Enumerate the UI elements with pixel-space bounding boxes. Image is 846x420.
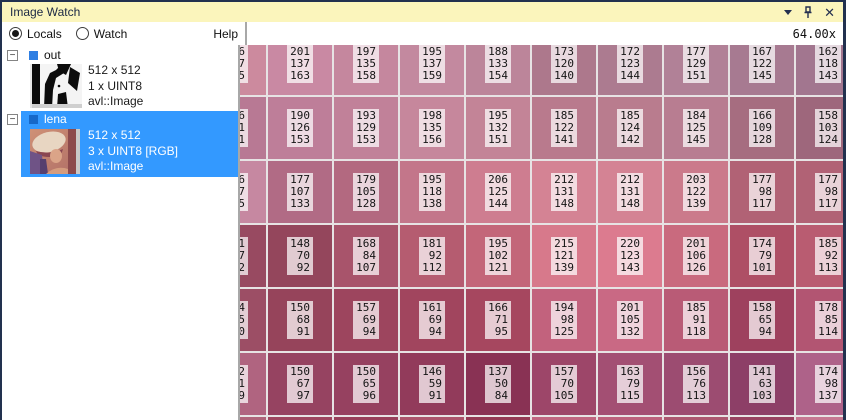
watch-radio-label[interactable]: Watch bbox=[94, 27, 128, 41]
pixel-value-chip: 212131148 bbox=[551, 173, 577, 211]
pixel-value-chip: 179105128 bbox=[353, 173, 379, 211]
pixel-value-chip: 212131148 bbox=[617, 173, 643, 211]
pixel-cell: 198135156 bbox=[400, 97, 466, 161]
item-name[interactable]: lena bbox=[44, 112, 67, 126]
pixel-row: 6111901261531931291531981351561951321511… bbox=[240, 97, 843, 161]
pixel-cell-partial: 172 bbox=[240, 225, 268, 289]
pixel-value-chip: 15676113 bbox=[683, 365, 709, 403]
locals-radio[interactable] bbox=[9, 27, 22, 40]
pixel-value-chip: 17479101 bbox=[749, 237, 775, 275]
pixel-value-chip: 173120140 bbox=[551, 45, 577, 83]
pixel-cell: 220123143 bbox=[598, 225, 664, 289]
pixel-cell: 17479101 bbox=[730, 225, 796, 289]
pixel-value-chip: 197135158 bbox=[353, 45, 379, 83]
pixel-cell: 1506891 bbox=[268, 289, 334, 353]
image-variable-icon bbox=[29, 51, 38, 60]
pixel-cell: 18591118 bbox=[664, 289, 730, 353]
pixel-value-chip: 215121139 bbox=[551, 237, 577, 275]
pixel-cell: 195132151 bbox=[466, 97, 532, 161]
main-area: − out 512 x 512 1 x UINT8 a bbox=[2, 45, 843, 420]
pixel-value-chip: 18592113 bbox=[815, 237, 841, 275]
pixel-cell: 162118143 bbox=[796, 45, 843, 97]
item-name[interactable]: out bbox=[44, 48, 61, 62]
pixel-value-chip: 188133154 bbox=[485, 45, 511, 83]
pixel-value-chip: 16884107 bbox=[353, 237, 379, 275]
pixel-value-chip: 611 bbox=[240, 109, 248, 147]
pixel-cell: 166109128 bbox=[730, 97, 796, 161]
pixel-cell: 193129153 bbox=[334, 97, 400, 161]
pixel-cell: 15676113 bbox=[664, 353, 730, 417]
pixel-cell: 1487092 bbox=[268, 225, 334, 289]
pixel-cell: 17885114 bbox=[796, 289, 843, 353]
item-type: avl::Image bbox=[88, 159, 178, 175]
pixel-value-chip: 195137159 bbox=[419, 45, 445, 83]
pixel-value-chip: 450 bbox=[240, 301, 248, 339]
pixel-value-chip: 1506891 bbox=[287, 301, 313, 339]
pixel-cell-partial: 450 bbox=[240, 289, 268, 353]
pixel-cell: 1616994 bbox=[400, 289, 466, 353]
pixel-value-chip: 1487092 bbox=[287, 237, 313, 275]
pixel-grid-viewport[interactable]: 6752011371631971351581951371591881331541… bbox=[240, 45, 843, 420]
image-watch-panel: Image Watch ✕ Locals Watch Help 64.00x − bbox=[2, 2, 843, 420]
pixel-value-chip: 220123143 bbox=[617, 237, 643, 275]
pixel-value-chip: 17798117 bbox=[815, 173, 841, 211]
pixel-value-chip: 172123144 bbox=[617, 45, 643, 83]
toolbar-right: 64.00x bbox=[247, 22, 843, 45]
pixel-value-chip: 203122139 bbox=[683, 173, 709, 211]
pixel-value-chip: 1506797 bbox=[287, 365, 313, 403]
pixel-cell: 190126153 bbox=[268, 97, 334, 161]
pixel-cell: 201105132 bbox=[598, 289, 664, 353]
item-format: 1 x UINT8 bbox=[88, 79, 143, 95]
pixel-value-chip: 195132151 bbox=[485, 109, 511, 147]
pixel-value-chip: 185122141 bbox=[551, 109, 577, 147]
pixel-value-chip: 18591118 bbox=[683, 301, 709, 339]
pixel-cell: 18592113 bbox=[796, 225, 843, 289]
pixel-cell-partial: 611 bbox=[240, 97, 268, 161]
toolbar-left: Locals Watch Help bbox=[2, 22, 247, 45]
pixel-cell: 212131148 bbox=[598, 161, 664, 225]
pixel-cell: 18192112 bbox=[400, 225, 466, 289]
locals-radio-label[interactable]: Locals bbox=[27, 27, 62, 41]
pixel-value-chip: 201137163 bbox=[287, 45, 313, 83]
pixel-cell: 212131148 bbox=[532, 161, 598, 225]
pixel-value-chip: 17798117 bbox=[749, 173, 775, 211]
pixel-value-chip: 1667195 bbox=[485, 301, 511, 339]
pixel-value-chip: 166109128 bbox=[749, 109, 775, 147]
item-size: 512 x 512 bbox=[88, 128, 178, 144]
pixel-value-chip: 1616994 bbox=[419, 301, 445, 339]
toolbar: Locals Watch Help 64.00x bbox=[2, 22, 843, 46]
pixel-cell: 14163103 bbox=[730, 353, 796, 417]
window-menu-icon[interactable] bbox=[784, 10, 792, 15]
pixel-value-chip: 19498125 bbox=[551, 301, 577, 339]
pixel-value-chip: 201106126 bbox=[683, 237, 709, 275]
window-title: Image Watch bbox=[10, 5, 80, 19]
pixel-cell-partial: 219 bbox=[240, 353, 268, 417]
pixel-value-chip: 16379115 bbox=[617, 365, 643, 403]
pixel-value-chip: 17498137 bbox=[815, 365, 841, 403]
pixel-row: 2191506797150659614659911375084157701051… bbox=[240, 353, 843, 417]
pixel-value-chip: 1465991 bbox=[419, 365, 445, 403]
pixel-cell: 1506797 bbox=[268, 353, 334, 417]
pixel-cell: 201106126 bbox=[664, 225, 730, 289]
pixel-value-chip: 675 bbox=[240, 45, 248, 83]
pixel-cell: 1576994 bbox=[334, 289, 400, 353]
pixel-value-chip: 195118138 bbox=[419, 173, 445, 211]
pixel-row: 1721487092168841071819211219510212121512… bbox=[240, 225, 843, 289]
pixel-cell: 201137163 bbox=[268, 45, 334, 97]
pixel-value-chip: 675 bbox=[240, 173, 248, 211]
item-format: 3 x UINT8 [RGB] bbox=[88, 144, 178, 160]
pixel-cell: 184125145 bbox=[664, 97, 730, 161]
locals-list: − out 512 x 512 1 x UINT8 a bbox=[2, 45, 240, 420]
pixel-value-chip: 1576994 bbox=[353, 301, 379, 339]
collapse-toggle-icon[interactable]: − bbox=[7, 50, 18, 61]
pixel-cell: 173120140 bbox=[532, 45, 598, 97]
image-variable-icon bbox=[29, 115, 38, 124]
pin-icon[interactable] bbox=[803, 6, 813, 19]
pixel-cell: 215121139 bbox=[532, 225, 598, 289]
pixel-value-chip: 172 bbox=[240, 237, 248, 275]
pixel-value-chip: 193129153 bbox=[353, 109, 379, 147]
out-thumbnail[interactable] bbox=[30, 64, 82, 108]
pixel-cell: 172123144 bbox=[598, 45, 664, 97]
pixel-cell: 197135158 bbox=[334, 45, 400, 97]
pixel-cell: 1375084 bbox=[466, 353, 532, 417]
pixel-value-chip: 17885114 bbox=[815, 301, 841, 339]
pixel-cell: 177107133 bbox=[268, 161, 334, 225]
pixel-value-chip: 219 bbox=[240, 365, 248, 403]
pixel-value-chip: 206125144 bbox=[485, 173, 511, 211]
pixel-cell: 1506596 bbox=[334, 353, 400, 417]
pixel-value-chip: 185124142 bbox=[617, 109, 643, 147]
pixel-value-chip: 1506596 bbox=[353, 365, 379, 403]
pixel-cell: 15770105 bbox=[532, 353, 598, 417]
pixel-cell: 185124142 bbox=[598, 97, 664, 161]
pixel-value-chip: 14163103 bbox=[749, 365, 775, 403]
zoom-level: 64.00x bbox=[793, 27, 836, 41]
pixel-cell: 158103124 bbox=[796, 97, 843, 161]
pixel-cell-partial: 675 bbox=[240, 161, 268, 225]
pixel-cell: 17798117 bbox=[796, 161, 843, 225]
pixel-cell: 19498125 bbox=[532, 289, 598, 353]
pixel-cell: 179105128 bbox=[334, 161, 400, 225]
pixel-cell: 16884107 bbox=[334, 225, 400, 289]
pixel-value-chip: 15770105 bbox=[551, 365, 577, 403]
pixel-value-chip: 198135156 bbox=[419, 109, 445, 147]
pixel-cell: 185122141 bbox=[532, 97, 598, 161]
watch-radio[interactable] bbox=[76, 27, 89, 40]
titlebar[interactable]: Image Watch ✕ bbox=[2, 2, 843, 23]
pixel-value-chip: 18192112 bbox=[419, 237, 445, 275]
pixel-cell: 195102121 bbox=[466, 225, 532, 289]
pixel-value-chip: 1375084 bbox=[485, 365, 511, 403]
pixel-cell: 16379115 bbox=[598, 353, 664, 417]
pixel-cell: 188133154 bbox=[466, 45, 532, 97]
pixel-value-chip: 190126153 bbox=[287, 109, 313, 147]
pixel-cell-partial: 675 bbox=[240, 45, 268, 97]
item-type: avl::Image bbox=[88, 94, 143, 110]
pixel-cell: 206125144 bbox=[466, 161, 532, 225]
pixel-value-chip: 201105132 bbox=[617, 301, 643, 339]
pixel-cell: 1465991 bbox=[400, 353, 466, 417]
help-link[interactable]: Help bbox=[213, 27, 238, 41]
pixel-value-chip: 1586594 bbox=[749, 301, 775, 339]
pixel-value-chip: 158103124 bbox=[815, 109, 841, 147]
pixel-cell: 195137159 bbox=[400, 45, 466, 97]
pixel-row: 6751771071331791051281951181382061251442… bbox=[240, 161, 843, 225]
item-size: 512 x 512 bbox=[88, 63, 143, 79]
pixel-cell: 167122145 bbox=[730, 45, 796, 97]
pixel-value-chip: 162118143 bbox=[815, 45, 841, 83]
pixel-value-chip: 167122145 bbox=[749, 45, 775, 83]
pixel-value-chip: 177129151 bbox=[683, 45, 709, 83]
collapse-toggle-icon[interactable]: − bbox=[7, 114, 18, 125]
pixel-row: 4501506891157699416169941667195194981252… bbox=[240, 289, 843, 353]
pixel-row: 6752011371631971351581951371591881331541… bbox=[240, 45, 843, 97]
pixel-cell: 203122139 bbox=[664, 161, 730, 225]
lena-thumbnail[interactable] bbox=[30, 129, 80, 174]
pixel-cell: 177129151 bbox=[664, 45, 730, 97]
close-icon[interactable]: ✕ bbox=[824, 7, 835, 18]
pixel-value-chip: 177107133 bbox=[287, 173, 313, 211]
pixel-cell: 1667195 bbox=[466, 289, 532, 353]
pixel-cell: 17798117 bbox=[730, 161, 796, 225]
pixel-cell: 17498137 bbox=[796, 353, 843, 417]
pixel-value-chip: 184125145 bbox=[683, 109, 709, 147]
pixel-cell: 195118138 bbox=[400, 161, 466, 225]
pixel-value-chip: 195102121 bbox=[485, 237, 511, 275]
pixel-grid: 6752011371631971351581951371591881331541… bbox=[240, 45, 843, 420]
pixel-cell: 1586594 bbox=[730, 289, 796, 353]
